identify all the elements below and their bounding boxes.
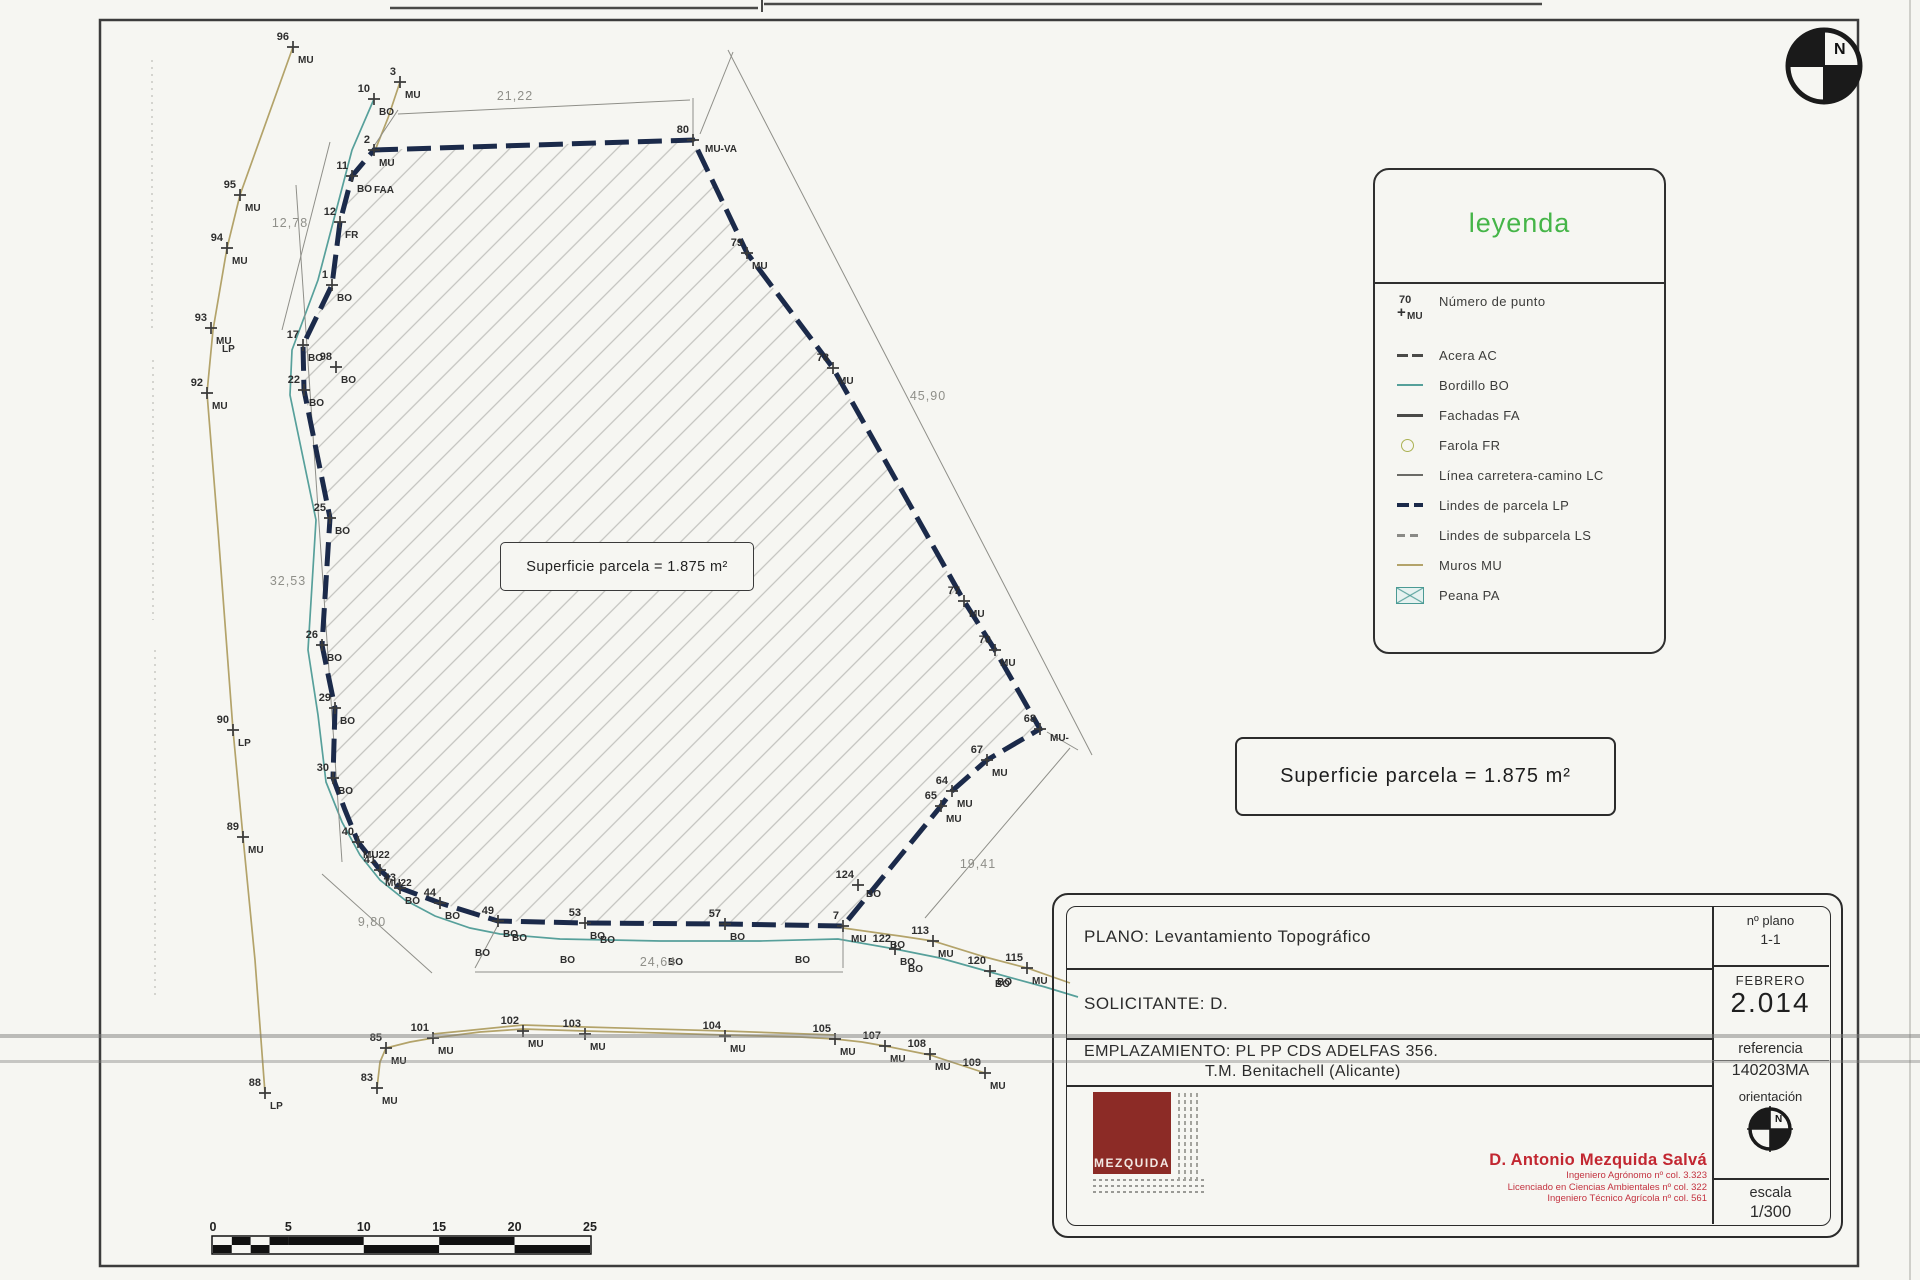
scale-bar-segment: [439, 1237, 514, 1245]
point-code: BO: [341, 375, 356, 386]
point-code: BO: [730, 932, 745, 943]
survey-point: 101MU: [411, 1022, 454, 1057]
point-number: 77: [948, 585, 960, 597]
point-number: 108: [908, 1038, 926, 1050]
plano-value: Levantamiento Topográfico: [1155, 927, 1371, 946]
legend-item-label: Fachadas FA: [1439, 408, 1520, 423]
lc-swatch-icon: [1395, 466, 1431, 484]
point-code: BO: [866, 889, 881, 900]
survey-point: 92MU: [191, 377, 228, 412]
dimension-line: [398, 100, 690, 114]
point-code: MU: [405, 90, 421, 101]
point-code: MU: [1032, 976, 1048, 987]
point-number: 12: [324, 206, 336, 218]
bordillo-swatch-icon: [1395, 376, 1431, 394]
point-code: MU: [957, 799, 973, 810]
ls-swatch-icon: [1395, 526, 1431, 544]
scale-bar-segment: [232, 1245, 251, 1253]
legend-item-lc: Línea carretera-camino LC: [1395, 460, 1654, 490]
point-code: BO: [475, 948, 490, 959]
legend-item-fachadas: Fachadas FA: [1395, 400, 1654, 430]
scale-bar-label: 5: [285, 1220, 292, 1234]
dimension-label: 24,64: [640, 955, 676, 969]
point-code: MU: [590, 1042, 606, 1053]
point-code: MU: [245, 203, 261, 214]
point-code: BO: [600, 935, 615, 946]
dimension-label: 9,80: [358, 915, 386, 929]
point-code: BO: [357, 184, 372, 195]
engineer-credit: D. Antonio Mezquida Salvá Ingeniero Agró…: [1347, 1151, 1707, 1205]
point-number: 68: [1024, 713, 1036, 725]
logo-fine-print: [1093, 1191, 1205, 1193]
legend-item-label: Línea carretera-camino LC: [1439, 468, 1604, 483]
muros-line: [433, 1025, 835, 1035]
scale-bar-segment: [439, 1245, 514, 1253]
muros-swatch-icon: [1395, 556, 1431, 574]
point-code: MU: [528, 1039, 544, 1050]
legend-item-lp: Lindes de parcela LP: [1395, 490, 1654, 520]
referencia-label: referencia: [1712, 1041, 1829, 1057]
point-code: BO: [335, 526, 350, 537]
point-number: 85: [370, 1032, 382, 1044]
row-divider: [1712, 1178, 1829, 1180]
point-code: MU: [379, 158, 395, 169]
scale-bar-label: 15: [432, 1220, 446, 1234]
point-code: LP: [238, 738, 251, 749]
legend-item-acera: Acera AC: [1395, 340, 1654, 370]
row-divider: [1066, 1085, 1712, 1087]
logo-contact-print: [1178, 1093, 1180, 1181]
point-code: MU: [382, 1096, 398, 1107]
dimension-label: 19,41: [960, 857, 996, 871]
emplazamiento-value: PL PP CDS ADELFAS 356.: [1236, 1043, 1439, 1060]
legend-item-label: Muros MU: [1439, 558, 1502, 573]
mezquida-logo-text: MEZQUIDA: [1093, 1156, 1171, 1170]
point-number: 25: [314, 502, 326, 514]
point-number: 64: [936, 775, 949, 787]
survey-point: 95MU: [224, 179, 261, 214]
point-code: BO: [327, 653, 342, 664]
point-code: MU-: [1050, 733, 1069, 744]
point-number: 113: [911, 925, 929, 937]
point-number: 70: [979, 634, 991, 646]
point-code: MU: [1000, 658, 1016, 669]
point-number: 88: [249, 1077, 261, 1089]
point-code: MU: [990, 1081, 1006, 1092]
survey-point: 83MU: [361, 1072, 398, 1107]
num-plano-label: nº plano: [1712, 913, 1829, 928]
survey-point: 103MU: [563, 1018, 606, 1053]
point-code: FAA: [374, 185, 394, 196]
date-year: 2.014: [1712, 987, 1829, 1019]
north-compass-icon: N: [1788, 30, 1860, 102]
scale-bar-segment: [251, 1237, 270, 1245]
survey-point: 85MU: [370, 1032, 407, 1067]
point-number: 67: [971, 744, 983, 756]
margin-scan-artifact: [152, 60, 155, 1000]
point-number: 22: [288, 374, 300, 386]
scale-bar-segment: [364, 1245, 439, 1253]
point-code: MU: [232, 256, 248, 267]
point-code: BO: [997, 977, 1012, 988]
solicitante-label: SOLICITANTE:: [1084, 994, 1205, 1013]
point-number: 49: [482, 905, 494, 917]
legend-item-peana: Peana PA: [1395, 580, 1654, 610]
point-number: 122: [873, 933, 891, 945]
point-number: 80: [677, 124, 689, 136]
referencia-value: 140203MA: [1712, 1062, 1829, 1080]
point-code: MU: [938, 949, 954, 960]
survey-point: 107MU: [863, 1030, 906, 1065]
point-number: 2: [364, 134, 370, 146]
point-number: 78: [817, 352, 829, 364]
legend-item-farola: Farola FR: [1395, 430, 1654, 460]
point-code: BO: [908, 964, 923, 975]
legend-item-label: Farola FR: [1439, 438, 1500, 453]
num-plano-value: 1-1: [1712, 931, 1829, 947]
survey-point: 102MU: [501, 1015, 544, 1050]
scale-bar-segment: [232, 1237, 251, 1245]
point-code: BO: [512, 933, 527, 944]
point-code: MU: [969, 609, 985, 620]
plano-row: PLANO: Levantamiento Topográfico: [1084, 927, 1371, 947]
dimension-label: 32,53: [270, 574, 306, 588]
point-number: 96: [277, 31, 289, 43]
point-number: 29: [319, 692, 331, 704]
point-code: LP: [270, 1101, 283, 1112]
legend-item-label: Número de punto: [1439, 294, 1545, 309]
legend-item-label: Acera AC: [1439, 348, 1497, 363]
point-code: FR: [345, 230, 359, 241]
point-number: 98: [320, 351, 332, 363]
point-number: 65: [925, 790, 937, 802]
emplazamiento-label: EMPLAZAMIENTO:: [1084, 1043, 1231, 1060]
scale-bar-segment: [213, 1245, 232, 1253]
point-code: BO: [890, 940, 905, 951]
escala-value: 1/300: [1712, 1203, 1829, 1222]
farola-swatch-icon: [1395, 436, 1431, 454]
point-number: 103: [563, 1018, 581, 1030]
legend-item-label: Lindes de parcela LP: [1439, 498, 1569, 513]
point-number: 95: [224, 179, 236, 191]
point-number: 102: [501, 1015, 519, 1027]
legend-title: leyenda: [1375, 208, 1664, 239]
lp-swatch-icon: [1395, 496, 1431, 514]
scale-bar-segment: [288, 1245, 363, 1253]
point-number: 92: [191, 377, 203, 389]
point-code: MU: [438, 1046, 454, 1057]
point-number: 41: [364, 854, 376, 866]
survey-point: 88LP: [249, 1077, 283, 1112]
legend-item-muros: Muros MU: [1395, 550, 1654, 580]
point-number: 40: [342, 826, 354, 838]
point-number: 107: [863, 1030, 881, 1042]
point-code: MU: [298, 55, 314, 66]
scale-bar-segment: [251, 1245, 270, 1253]
point-code: MU: [992, 768, 1008, 779]
engineer-title-3: Ingeniero Técnico Agrícola nº col. 561: [1347, 1193, 1707, 1205]
point-code: MU-VA: [705, 144, 737, 155]
point-number: 17: [287, 329, 299, 341]
point-number: 94: [211, 232, 224, 244]
point-sample-icon: 70+MU: [1395, 294, 1431, 334]
logo-contact-print: [1184, 1093, 1186, 1181]
legend-separator: [1375, 282, 1664, 284]
date-month: FEBRERO: [1712, 973, 1829, 988]
point-code: BO: [445, 911, 460, 922]
logo-contact-print: [1190, 1093, 1192, 1181]
point-code: MU: [752, 261, 768, 272]
scale-bar-label: 10: [357, 1220, 371, 1234]
point-code: BO: [309, 398, 324, 409]
point-code: MU: [391, 1056, 407, 1067]
parcel-hatch-area: [303, 140, 1040, 926]
point-number: 7: [833, 910, 839, 922]
point-number: 115: [1005, 952, 1023, 964]
row-divider: [1712, 965, 1829, 967]
legend-item-label: Lindes de subparcela LS: [1439, 528, 1591, 543]
point-code: BO: [338, 786, 353, 797]
point-number: 26: [306, 629, 318, 641]
scale-bar-segment: [270, 1245, 289, 1253]
dimension-label: 12,78: [272, 216, 308, 230]
point-number: 3: [390, 66, 396, 78]
logo-contact-print: [1196, 1093, 1198, 1181]
svg-text:N: N: [1834, 41, 1846, 58]
legend-item-label: Peana PA: [1439, 588, 1500, 603]
point-code: MU: [838, 376, 854, 387]
point-code: MU: [935, 1062, 951, 1073]
legend-item-ls: Lindes de subparcela LS: [1395, 520, 1654, 550]
legend-item-label: Bordillo BO: [1439, 378, 1509, 393]
point-code: MU: [851, 934, 867, 945]
point-number: 93: [195, 312, 207, 324]
plano-label: PLANO:: [1084, 927, 1149, 946]
survey-point: 104MU: [703, 1020, 746, 1055]
point-number: 83: [361, 1072, 373, 1084]
point-number: 79: [731, 237, 743, 249]
solicitante-value: D.: [1210, 994, 1228, 1013]
point-code: MU: [946, 814, 962, 825]
point-number: 90: [217, 714, 229, 726]
svg-text:N: N: [1775, 1114, 1782, 1125]
point-code: BO: [337, 293, 352, 304]
point-code: MU: [730, 1044, 746, 1055]
solicitante-row: SOLICITANTE: D.: [1084, 994, 1228, 1014]
legend-item-bordillo: Bordillo BO: [1395, 370, 1654, 400]
point-number: 30: [317, 762, 329, 774]
survey-point: 96MU: [277, 31, 314, 66]
legend-items: 70+MUNúmero de puntoAcera ACBordillo BOF…: [1395, 292, 1654, 610]
point-number: 44: [424, 887, 437, 899]
logo-fine-print: [1093, 1185, 1205, 1187]
legend-item-point: 70+MUNúmero de punto: [1395, 292, 1654, 340]
point-code: BO: [379, 107, 394, 118]
engineer-name: D. Antonio Mezquida Salvá: [1347, 1151, 1707, 1170]
legend-panel: leyenda 70+MUNúmero de puntoAcera ACBord…: [1373, 168, 1666, 654]
dimension-label: 21,22: [497, 89, 533, 103]
acera-swatch-icon: [1395, 346, 1431, 364]
title-block: PLANO: Levantamiento Topográfico SOLICIT…: [1052, 893, 1843, 1238]
logo-fine-print: [1093, 1179, 1205, 1181]
point-number: 10: [358, 83, 370, 95]
point-code: BO: [795, 955, 810, 966]
scale-bar-segment: [515, 1237, 590, 1245]
emplazamiento-line2: T.M. Benitachell (Alicante): [1205, 1063, 1401, 1081]
dimension-label: 45,90: [910, 389, 946, 403]
point-number: 101: [411, 1022, 429, 1034]
point-code: BO: [405, 896, 420, 907]
parcel-area-box: Superficie parcela = 1.875 m²: [1235, 737, 1616, 816]
point-number: 53: [569, 907, 581, 919]
scale-bar-segment: [288, 1237, 363, 1245]
point-code: BO: [340, 716, 355, 727]
point-code: LP: [222, 344, 235, 355]
orientation-compass-icon: N: [1746, 1105, 1794, 1153]
mezquida-logo: MEZQUIDA: [1093, 1092, 1171, 1174]
point-number: 104: [703, 1020, 722, 1032]
fachadas-swatch-icon: [1395, 406, 1431, 424]
point-number: 109: [963, 1057, 981, 1069]
point-number: 89: [227, 821, 239, 833]
emplazamiento-row: EMPLAZAMIENTO: PL PP CDS ADELFAS 356.: [1084, 1043, 1438, 1061]
point-number: 120: [968, 955, 986, 967]
scale-bar-label: 25: [583, 1220, 597, 1234]
point-code: MU: [890, 1054, 906, 1065]
scale-bar-label: 0: [210, 1220, 217, 1234]
engineer-title-1: Ingeniero Agrónomo nº col. 3.323: [1347, 1170, 1707, 1182]
row-divider: [1712, 1060, 1829, 1061]
peana-swatch-icon: [1395, 586, 1431, 604]
orientacion-label: orientación: [1712, 1089, 1829, 1104]
point-number: 57: [709, 908, 721, 920]
point-code: BO: [560, 955, 575, 966]
survey-point: 3MU: [390, 66, 421, 101]
point-code: MU: [840, 1047, 856, 1058]
row-divider: [1066, 1038, 1712, 1040]
dimension-line: [700, 52, 733, 134]
point-code: MU: [248, 845, 264, 856]
point-number: 1: [322, 269, 328, 281]
point-number: 11: [336, 160, 348, 172]
point-number: 43: [384, 872, 396, 884]
parcel-area-label: Superficie parcela = 1.875 m²: [500, 542, 754, 591]
scale-bar-segment: [270, 1237, 289, 1245]
scale-bar-segment: [213, 1237, 232, 1245]
scale-bar-segment: [364, 1237, 439, 1245]
engineer-title-2: Licenciado en Ciencias Ambientales nº co…: [1347, 1182, 1707, 1194]
point-code: MU: [212, 401, 228, 412]
scale-bar: 0510152025: [210, 1220, 597, 1254]
escala-label: escala: [1712, 1185, 1829, 1201]
scale-bar-segment: [515, 1245, 590, 1253]
survey-point: 109MU: [963, 1057, 1006, 1092]
point-number: 124: [836, 869, 855, 881]
survey-point: 113MU: [911, 925, 953, 960]
point-number: 105: [813, 1023, 831, 1035]
scale-bar-label: 20: [508, 1220, 522, 1234]
row-divider: [1066, 968, 1712, 970]
survey-point: 10BO: [358, 83, 394, 118]
